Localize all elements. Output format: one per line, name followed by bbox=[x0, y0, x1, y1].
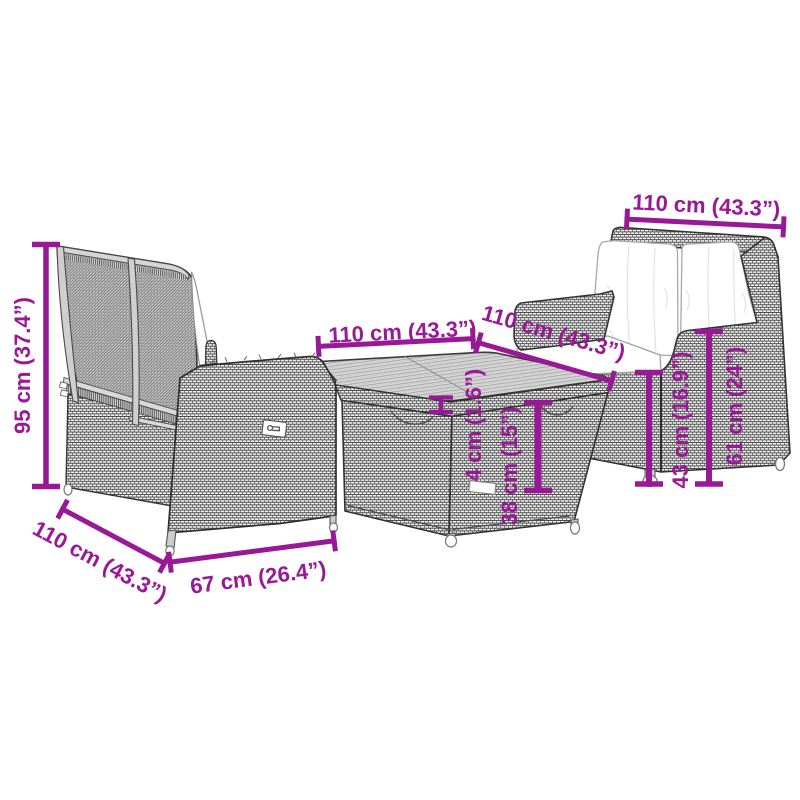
svg-text:38 cm (15”): 38 cm (15”) bbox=[497, 407, 522, 526]
svg-text:95 cm (37.4”): 95 cm (37.4”) bbox=[10, 297, 35, 434]
svg-text:43 cm (16.9”): 43 cm (16.9”) bbox=[668, 352, 693, 489]
svg-text:4 cm (1.6”): 4 cm (1.6”) bbox=[461, 369, 486, 482]
svg-text:61 cm (24”): 61 cm (24”) bbox=[722, 347, 747, 466]
